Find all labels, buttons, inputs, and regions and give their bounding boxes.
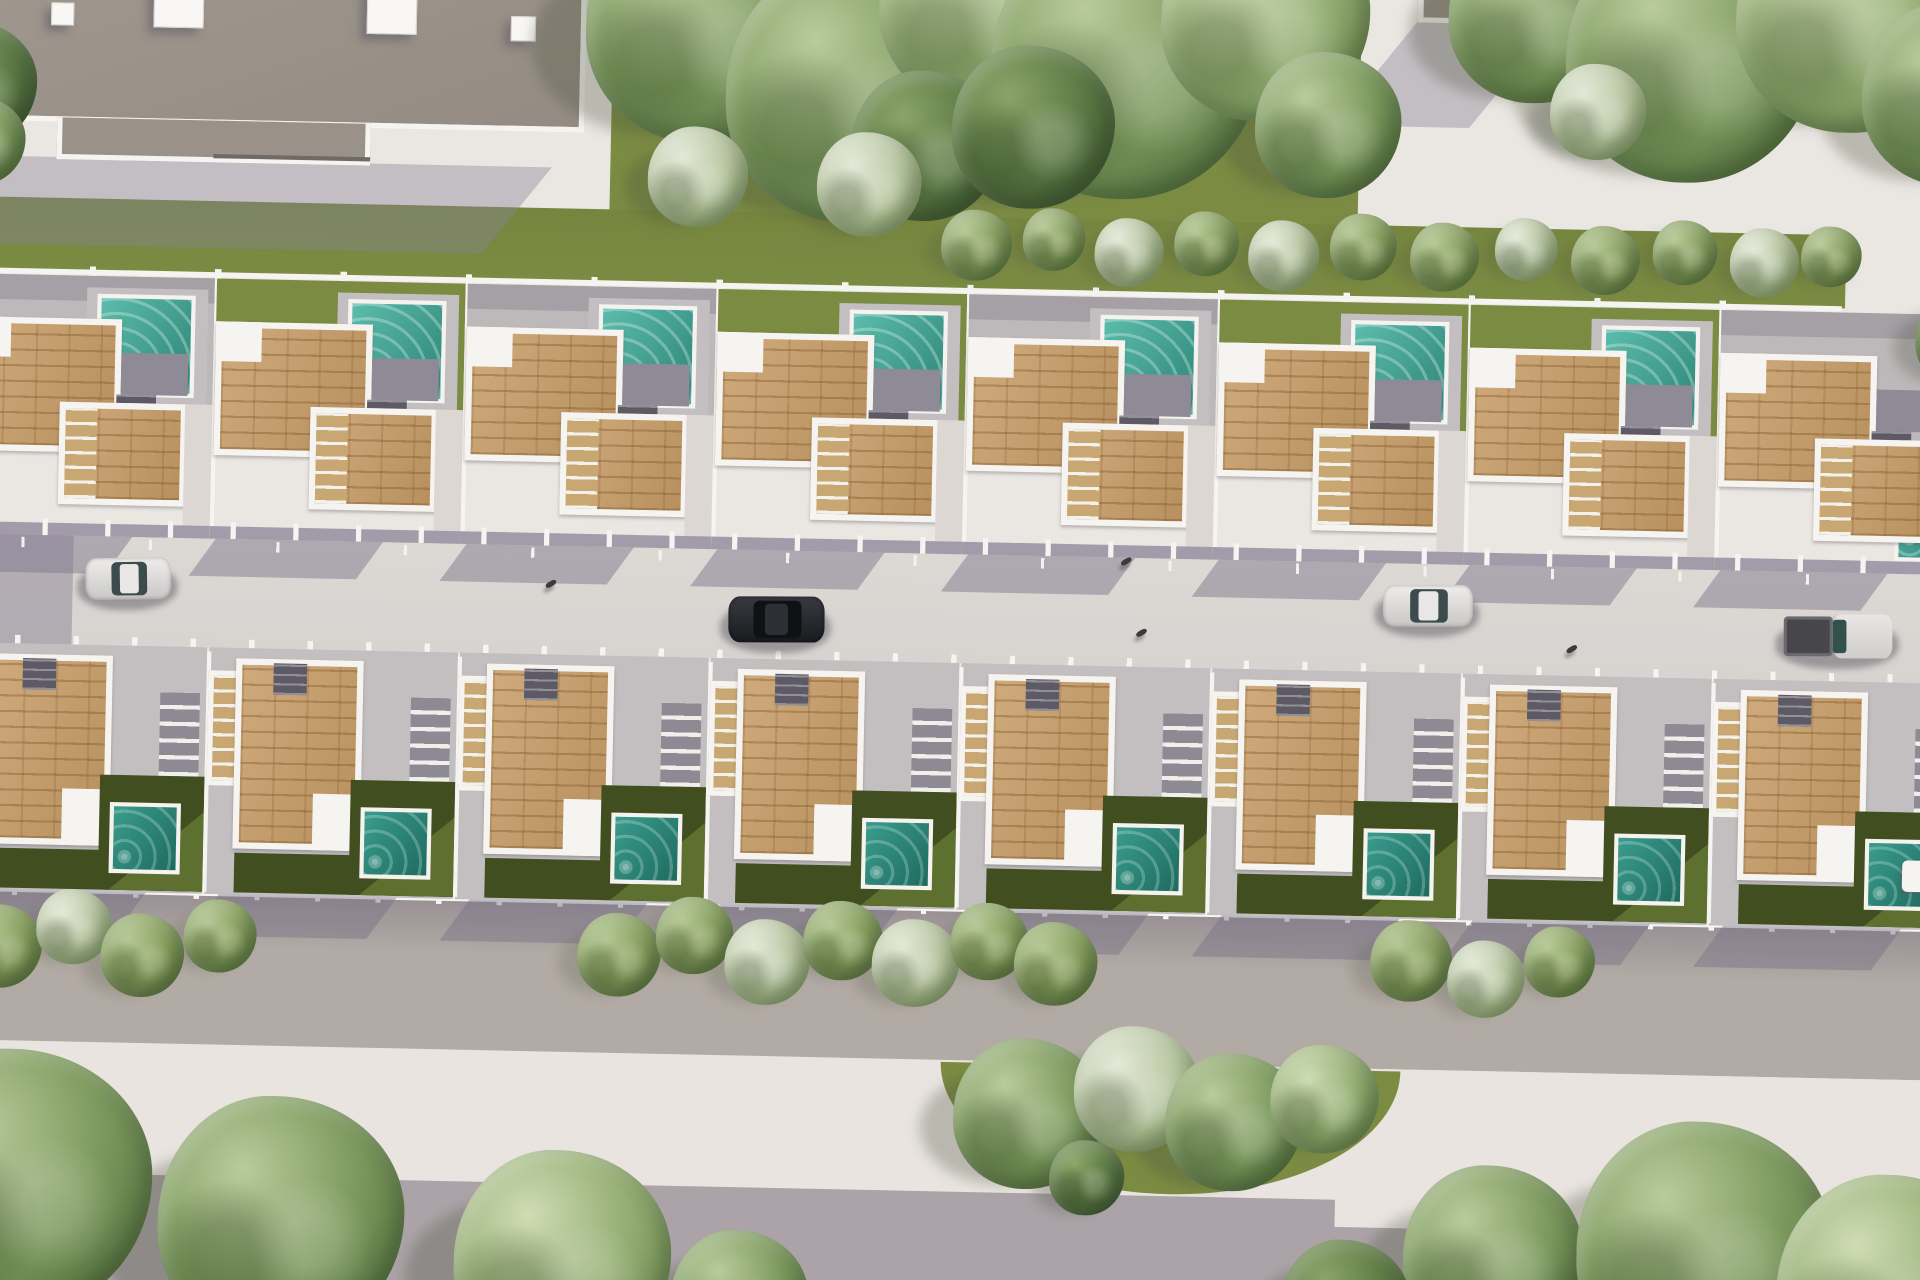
hedge-row <box>111 647 203 661</box>
car-silver <box>1383 585 1473 627</box>
patio-shadow <box>1876 390 1920 433</box>
planting-bed <box>471 288 580 315</box>
planting-bed <box>1725 314 1834 341</box>
truck-windshield <box>1833 620 1847 653</box>
wall-post <box>544 529 550 546</box>
pergola-trellis <box>1162 713 1203 797</box>
pool <box>1613 833 1686 906</box>
stairwell-ladder <box>1569 440 1602 531</box>
driveway <box>1687 436 1717 570</box>
wall-post <box>795 534 801 551</box>
aerial-render-viewport <box>0 0 1920 1280</box>
wall-post <box>1421 547 1427 564</box>
stair-treads <box>1025 679 1059 711</box>
stair-treads <box>775 674 809 706</box>
patio-shadow <box>1374 379 1442 422</box>
wall-post <box>1672 552 1678 569</box>
pool <box>861 818 934 891</box>
car-roof <box>765 604 788 635</box>
pergola-trellis <box>911 708 952 792</box>
wall-post <box>1233 543 1239 560</box>
roof-notch <box>1720 353 1767 394</box>
truck-bed <box>1784 616 1833 656</box>
hedge-row <box>612 658 704 672</box>
wall-post <box>1359 546 1365 563</box>
stair-treads <box>1276 684 1310 716</box>
pool <box>359 807 432 880</box>
stair-treads <box>524 669 558 701</box>
hedge-row <box>1365 674 1457 688</box>
wall-post <box>607 530 613 547</box>
stairwell-ladder <box>315 413 348 504</box>
stairwell-ladder <box>1067 429 1100 520</box>
stairwell-ladder <box>64 408 97 499</box>
patio-table <box>1902 860 1920 892</box>
wall-post <box>419 526 425 543</box>
wall-post <box>230 522 236 539</box>
patio-shadow <box>371 358 439 401</box>
apartment-roof <box>0 0 588 133</box>
wall-post <box>293 524 299 541</box>
wall-post <box>1045 539 1051 556</box>
car-silver <box>85 557 171 600</box>
wall-post <box>857 535 863 552</box>
car-black <box>728 596 824 642</box>
driveway <box>182 404 212 538</box>
pool <box>1111 823 1184 896</box>
stairwell-ladder <box>816 424 849 515</box>
pool <box>610 812 683 885</box>
roof-notch <box>215 321 262 362</box>
roof-skylight-cube <box>51 2 74 25</box>
patio-shadow <box>121 353 189 396</box>
hedge-row <box>863 663 955 677</box>
pergola-trellis <box>660 703 701 787</box>
roof-skylight-cube <box>153 0 204 28</box>
pergola-trellis <box>1663 724 1704 808</box>
stair-treads <box>1778 695 1812 727</box>
patio-shadow <box>1124 374 1192 417</box>
driveway <box>684 415 714 549</box>
wall-post <box>1610 551 1616 568</box>
bush <box>1800 226 1862 288</box>
planting-bed <box>973 298 1082 325</box>
driveway <box>1185 425 1215 559</box>
scene <box>0 0 1920 1280</box>
wall-post <box>168 521 174 538</box>
pergola-trellis <box>159 692 200 776</box>
stairwell-ladder <box>1819 445 1852 536</box>
stairwell-ladder <box>566 419 599 510</box>
patio-shadow <box>1625 384 1693 427</box>
roof-skylight-cube <box>366 0 417 35</box>
pergola-trellis <box>409 697 450 781</box>
wall-post <box>356 525 362 542</box>
wall-post <box>1171 542 1177 559</box>
wall-post <box>1735 554 1741 571</box>
roof-notch <box>1469 348 1516 389</box>
pool <box>108 802 181 875</box>
wall-post <box>732 533 738 550</box>
wall-post <box>1547 550 1553 567</box>
tree <box>1254 50 1403 199</box>
patio-shadow <box>873 369 941 412</box>
driveway <box>935 420 965 554</box>
driveway <box>433 410 463 544</box>
pool <box>1362 828 1435 901</box>
stairwell-ladder <box>1318 434 1351 525</box>
apartment-roof-shadow <box>0 155 552 254</box>
roof-notch <box>466 327 513 368</box>
pergola-trellis <box>1914 729 1920 813</box>
driveway <box>1436 431 1466 565</box>
roof-notch <box>968 337 1015 378</box>
wall-post <box>1108 541 1114 558</box>
car-truck <box>1784 614 1893 658</box>
wall-post <box>1296 545 1302 562</box>
wall-post <box>983 538 989 555</box>
stair-treads <box>1527 690 1561 722</box>
patio-shadow <box>622 363 690 406</box>
car-roof <box>1419 591 1439 620</box>
wall-post <box>42 518 48 535</box>
car-roof <box>119 564 138 594</box>
roof-notch <box>1218 342 1265 383</box>
wall-post <box>1798 555 1804 572</box>
hedge-row <box>1866 684 1920 698</box>
wall-post <box>481 528 487 545</box>
wall-post <box>1484 549 1490 566</box>
villa-cast-shadow <box>1693 926 1901 971</box>
stair-treads <box>273 663 307 695</box>
roof-notch <box>0 316 11 357</box>
roof-notch <box>717 332 764 373</box>
wall-post <box>105 520 111 537</box>
wall-post <box>669 531 675 548</box>
pergola-trellis <box>1412 718 1453 802</box>
wall-post <box>1860 556 1866 573</box>
stair-treads <box>22 658 56 690</box>
wall-post <box>920 537 926 554</box>
planting-bed <box>0 277 79 304</box>
